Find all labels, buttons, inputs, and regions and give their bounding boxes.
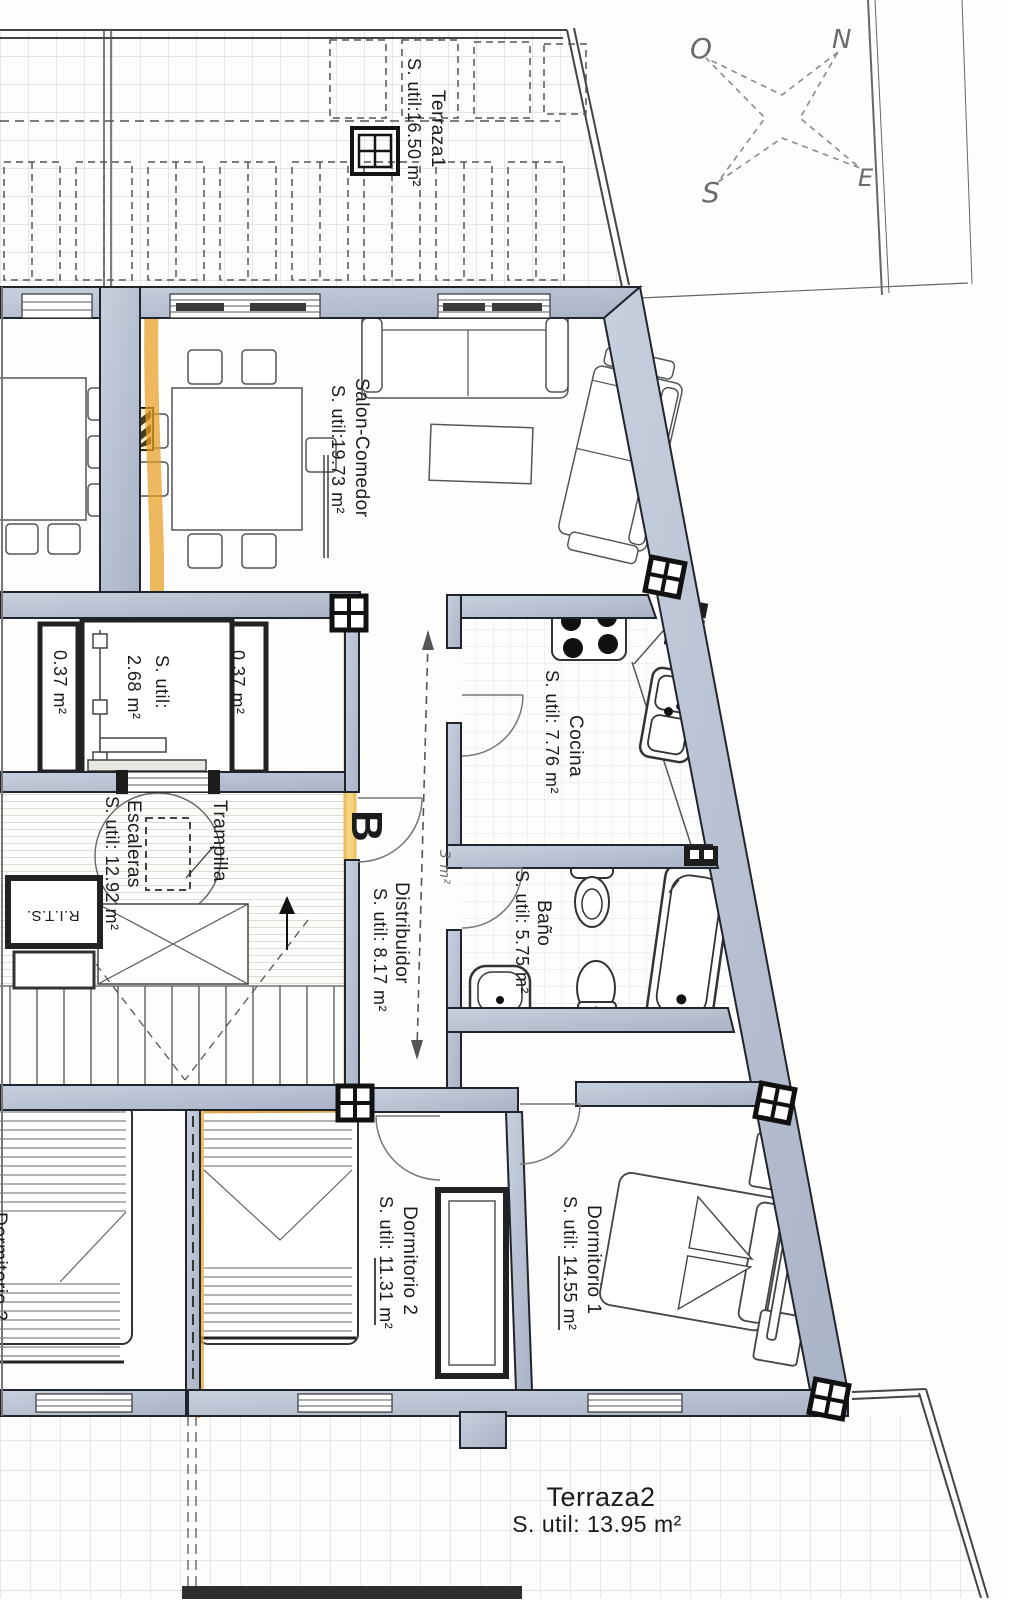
scanned-floorplan-page: O N S E bbox=[0, 0, 1009, 1600]
floor-plan-canvas: O N S E bbox=[0, 0, 1009, 1600]
cocina-label: Cocina bbox=[565, 715, 586, 777]
sofa-large bbox=[362, 312, 568, 398]
door-dorm2 bbox=[376, 1116, 440, 1180]
compass-west-label: O bbox=[690, 32, 713, 65]
terraza2-area-label: S. util: 13.95 m² bbox=[512, 1511, 682, 1537]
handwritten-note: 3 m² bbox=[436, 850, 452, 885]
trastero-area-label: 2.68 m² bbox=[124, 655, 144, 720]
distribuidor-arrow bbox=[411, 630, 434, 1060]
shaft-right-label: 0.37 m² bbox=[228, 650, 248, 715]
skylight-icon bbox=[352, 128, 398, 174]
bed-neighbour bbox=[0, 1104, 132, 1362]
trastero-label: S. util: bbox=[152, 655, 172, 709]
dormitorio2-area-label: S. util: 11.31 m² bbox=[376, 1196, 396, 1329]
portal-b-label: B bbox=[342, 810, 391, 842]
window-neighbour-top bbox=[22, 294, 92, 318]
dining-table bbox=[136, 350, 336, 568]
trampilla-label: Trampilla bbox=[209, 800, 230, 882]
shaft-left-label: 0.37 m² bbox=[50, 650, 70, 715]
bano-area-label: S. util: 5.75 m² bbox=[512, 870, 532, 994]
bath-wall-vent bbox=[684, 846, 718, 866]
compass-rose: O N S E bbox=[690, 25, 874, 209]
bano-label: Baño bbox=[533, 900, 554, 946]
stair-treads bbox=[0, 986, 345, 1086]
compass-south-label: S bbox=[702, 176, 720, 209]
window-dorm2 bbox=[298, 1394, 392, 1412]
compass-east-label: E bbox=[858, 164, 874, 192]
salon-label: Salon-Comedor bbox=[351, 378, 372, 518]
window-salon-2 bbox=[438, 294, 550, 318]
compass-north-label: N bbox=[832, 25, 852, 55]
coffee-table bbox=[429, 424, 533, 484]
window-dorm1 bbox=[588, 1394, 682, 1412]
dormitorio1-area-label: S. util: 14.55 m² bbox=[560, 1196, 580, 1331]
scan-edge-strip bbox=[182, 1586, 522, 1599]
dormitorio1-label: Dormitorio 1 bbox=[583, 1205, 604, 1314]
wardrobe bbox=[438, 1190, 506, 1376]
stair-door-slot bbox=[116, 770, 220, 794]
salon-area-label: S. util:19.73 m² bbox=[328, 385, 348, 514]
distribuidor-area-label: S. util: 8.17 m² bbox=[370, 888, 390, 1012]
bed-dormitorio2 bbox=[198, 1104, 358, 1344]
terraza1-label: Terraza1 bbox=[427, 90, 448, 168]
terraza1-area bbox=[0, 28, 630, 287]
escaleras-area-label: S. util: 12.92 m² bbox=[102, 796, 122, 931]
escaleras-label: Escaleras bbox=[123, 800, 144, 888]
terraza1-area-label: S. util:16.50 m² bbox=[404, 58, 424, 187]
terraza2-label: Terraza2 bbox=[546, 1482, 655, 1512]
rits-label: R.I.T.S. bbox=[26, 907, 79, 924]
door-dorm1 bbox=[520, 1104, 580, 1164]
cocina-area-label: S. util: 7.76 m² bbox=[542, 670, 562, 794]
distribuidor-label: Distribuidor bbox=[391, 882, 412, 984]
window-salon-1 bbox=[170, 294, 320, 318]
window-neighbour-bottom bbox=[36, 1394, 132, 1412]
dormitorio2-label: Dormitorio 2 bbox=[399, 1206, 420, 1315]
dormitorio2-vecino-label: Dormitorio 2 bbox=[0, 1212, 10, 1321]
